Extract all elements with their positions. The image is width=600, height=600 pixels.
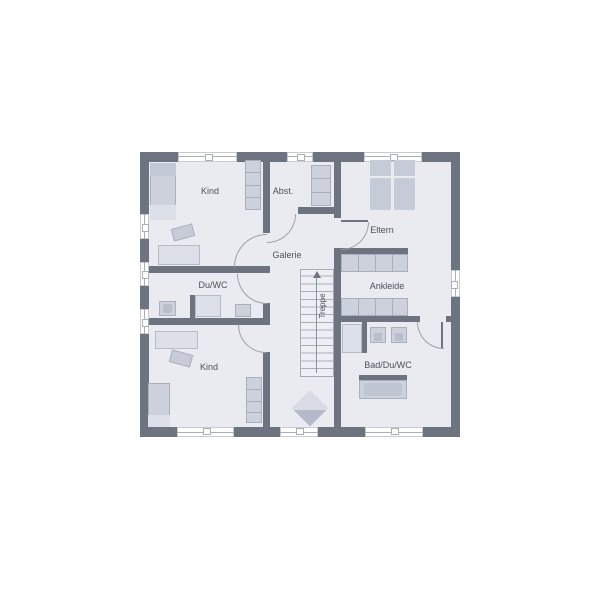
room-label-bad-du-wc: Bad/Du/WC — [353, 360, 423, 370]
washbasin — [235, 304, 251, 317]
washbasin — [391, 327, 407, 343]
floor-plan: Treppe — [140, 152, 460, 437]
desk — [155, 331, 198, 349]
wall-stair-east — [334, 248, 341, 427]
wall-kindtop-south — [149, 266, 270, 273]
shower — [342, 324, 362, 353]
room-label-galerie: Galerie — [262, 250, 312, 260]
toilet — [159, 301, 176, 316]
wardrobe — [245, 160, 261, 210]
door-leaf-eltern — [341, 220, 368, 222]
page: { "plan": { "rooms": { "kind_top": "Kind… — [0, 0, 600, 600]
stair-walkline — [316, 277, 317, 373]
double-bed — [370, 160, 415, 210]
window — [140, 262, 149, 286]
bed — [148, 383, 170, 427]
window — [140, 214, 149, 239]
wardrobe-row — [341, 298, 408, 316]
window — [178, 152, 237, 162]
wall-kindbottom-east — [263, 352, 270, 427]
window — [280, 427, 318, 437]
door-arc-bad — [417, 322, 444, 349]
desk — [158, 245, 200, 265]
wall-ankleide-bad — [341, 316, 420, 322]
door-arc-abst — [267, 214, 296, 243]
room-label-kind-top: Kind — [185, 186, 235, 196]
chair — [171, 223, 196, 241]
window — [451, 270, 460, 297]
window — [287, 152, 313, 162]
window — [177, 427, 234, 437]
bed — [150, 163, 176, 220]
room-label-duwc: Du/WC — [188, 280, 238, 290]
wardrobe-row — [341, 254, 408, 272]
room-label-ankleide: Ankleide — [357, 281, 417, 291]
washbasin — [370, 327, 386, 343]
wardrobe — [311, 165, 331, 206]
room-label-treppe: Treppe — [318, 276, 330, 336]
room-label-abst: Abst. — [258, 186, 308, 196]
door-leaf-bad — [441, 322, 443, 348]
door-arc-kind-bottom — [238, 325, 266, 353]
bathtub — [359, 375, 407, 399]
shower — [195, 295, 221, 317]
room-label-eltern: Eltern — [357, 225, 407, 235]
wall-duwc-south — [149, 318, 270, 325]
room-label-kind-bottom: Kind — [184, 362, 234, 372]
wall-bad-door-stub — [446, 316, 451, 322]
door-arc-duwc — [237, 274, 267, 304]
window — [140, 309, 149, 334]
galerie-furniture — [292, 390, 329, 427]
wall-shower-stub — [362, 322, 367, 353]
wardrobe — [246, 377, 262, 423]
wall-abst-south — [298, 207, 341, 214]
window — [365, 427, 423, 437]
